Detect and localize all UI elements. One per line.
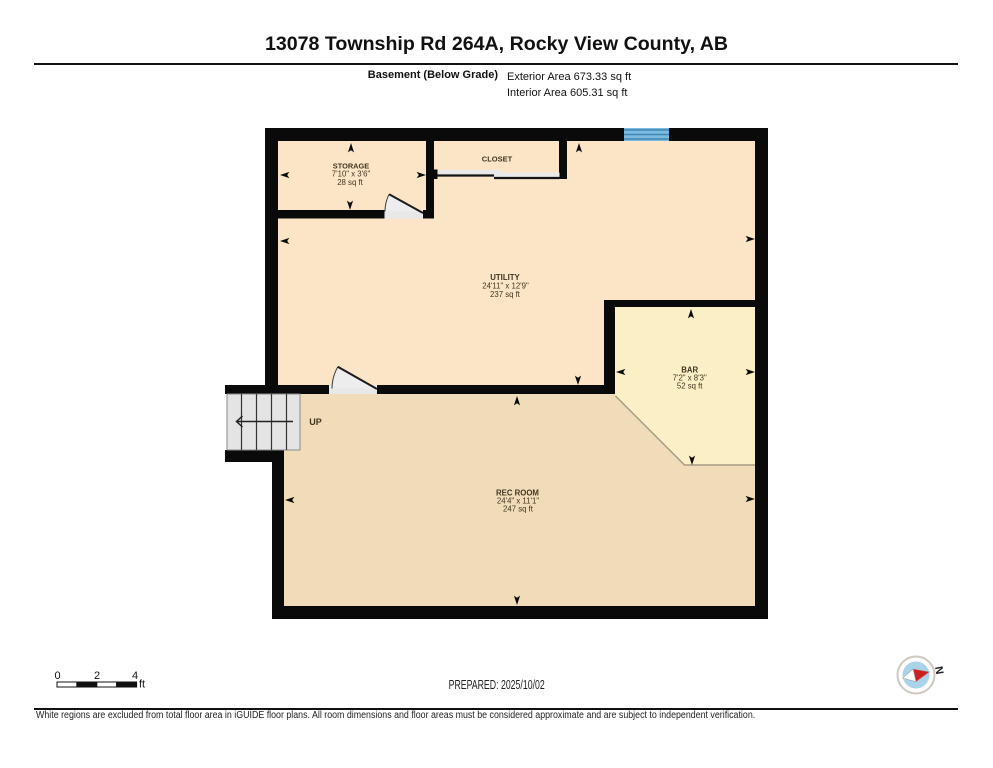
svg-text:N: N — [932, 665, 945, 675]
svg-text:CLOSET: CLOSET — [482, 154, 513, 163]
svg-text:237 sq ft: 237 sq ft — [490, 290, 521, 299]
svg-text:UP: UP — [309, 417, 322, 427]
svg-text:28 sq ft: 28 sq ft — [337, 178, 363, 187]
svg-text:247 sq ft: 247 sq ft — [503, 505, 534, 514]
svg-text:52 sq ft: 52 sq ft — [677, 382, 703, 391]
